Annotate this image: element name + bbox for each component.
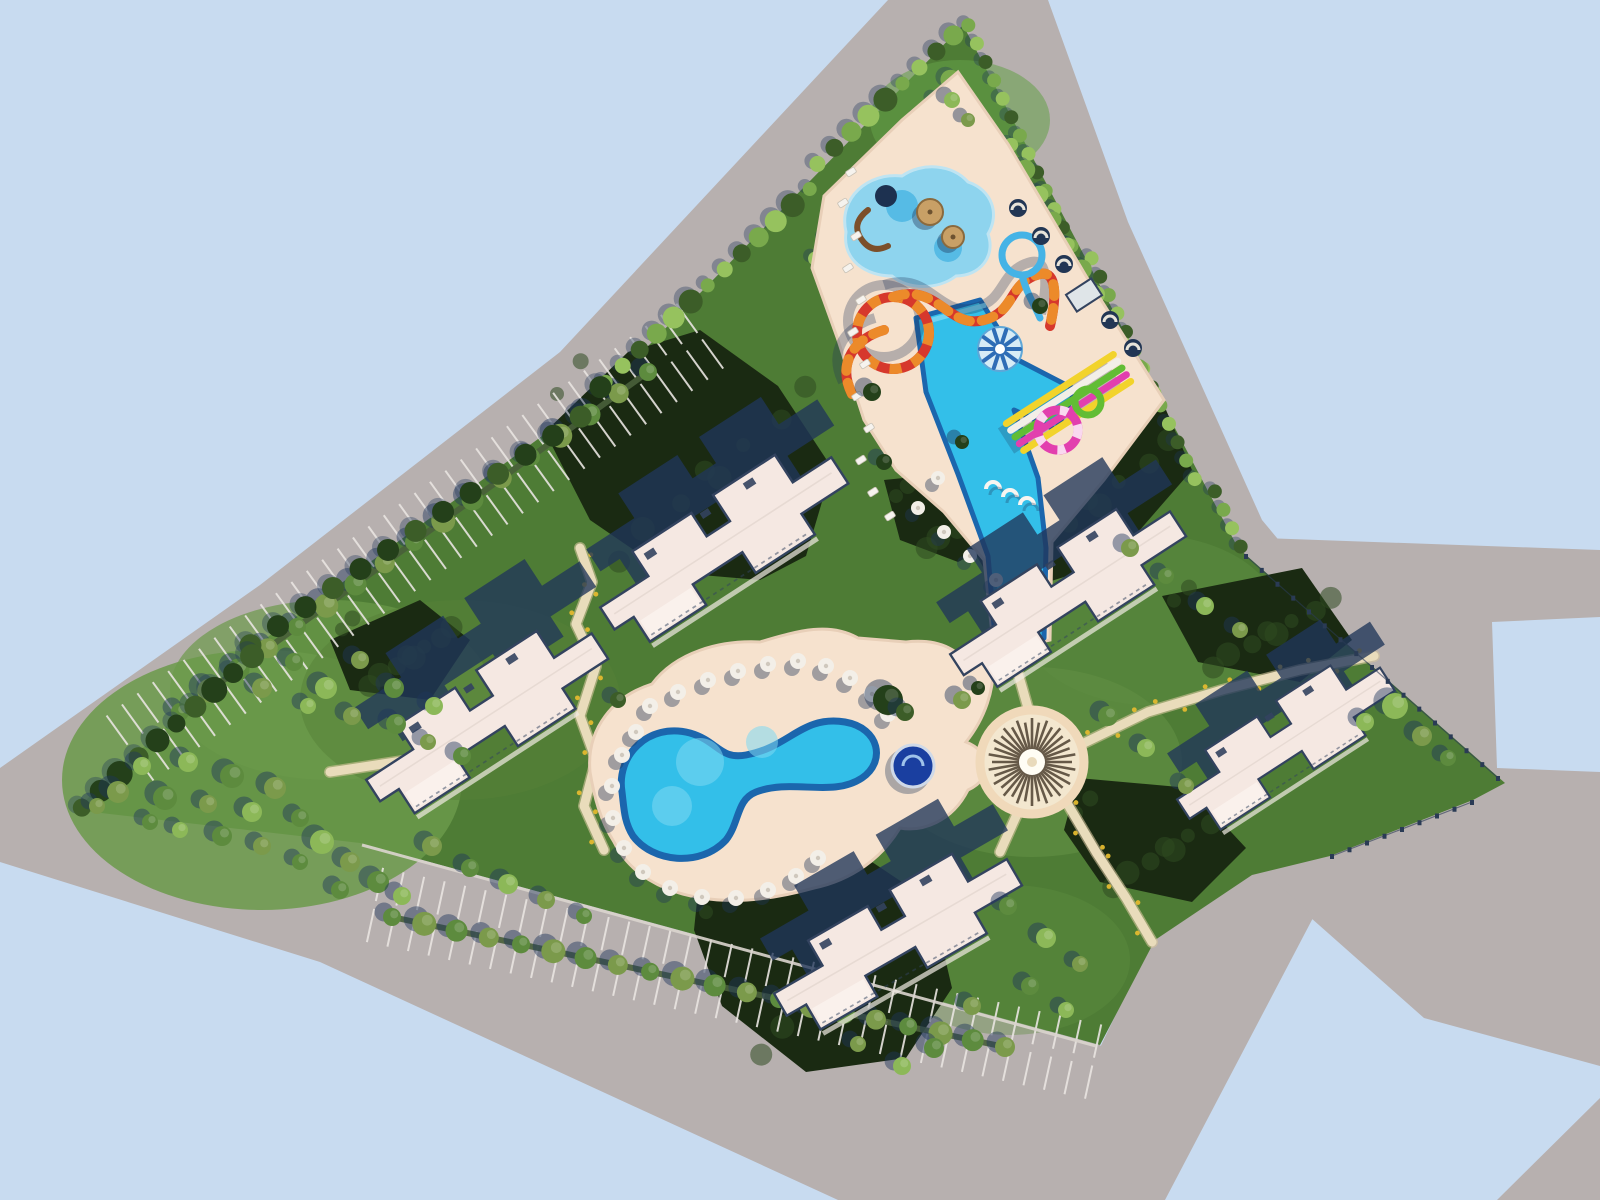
masterplan-svg	[0, 0, 1600, 1200]
plaza-area	[980, 710, 1084, 814]
masterplan-rendering	[0, 0, 1600, 1200]
